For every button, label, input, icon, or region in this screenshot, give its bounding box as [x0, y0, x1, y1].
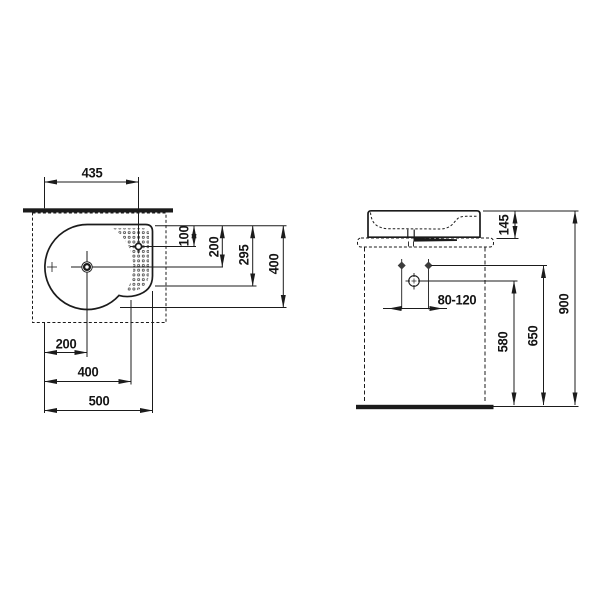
side-view [356, 211, 579, 409]
mounting-hole-left [398, 259, 406, 309]
dim-label-80-120: 80-120 [438, 293, 477, 307]
dim-label-900: 900 [557, 293, 571, 314]
floor-line [356, 405, 494, 409]
drawing-linework [0, 0, 600, 600]
dim-label-650: 650 [526, 326, 540, 347]
wall-line [23, 208, 173, 212]
plan-view [23, 177, 287, 413]
technical-drawing-canvas: 435 100 200 295 400 200 400 500 145 80-1… [0, 0, 600, 600]
basin-outline-side [368, 211, 480, 237]
dim-label-400-vert: 400 [267, 253, 281, 274]
dim-label-435: 435 [81, 166, 102, 180]
dim-label-200-horiz: 200 [56, 337, 77, 351]
drain-position-symbol [406, 273, 423, 290]
dim-label-200-vert: 200 [207, 236, 221, 257]
dim-label-295: 295 [237, 245, 251, 266]
mounting-hole-right [425, 259, 433, 309]
dim-label-100: 100 [177, 225, 191, 246]
dim-label-400-horiz: 400 [78, 365, 99, 379]
dim-label-580: 580 [496, 332, 510, 353]
dim-label-500: 500 [88, 394, 109, 408]
dim-label-145: 145 [497, 214, 511, 235]
